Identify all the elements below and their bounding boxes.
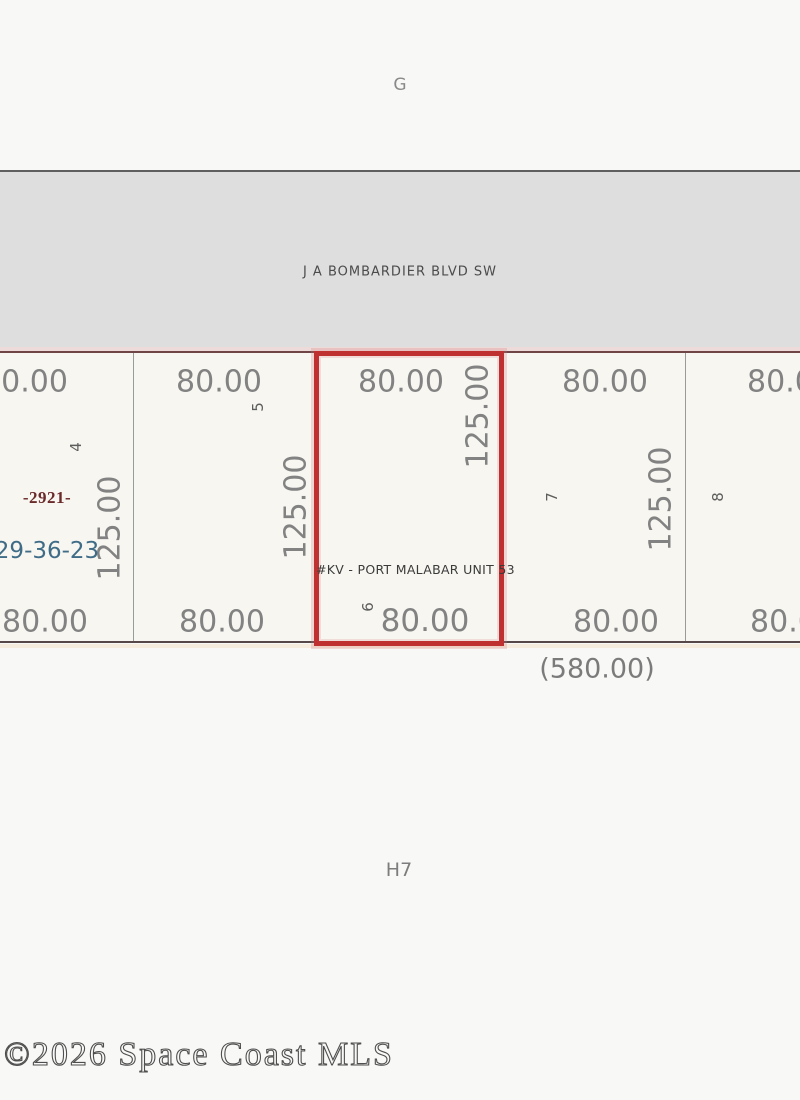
road-name-label: J A BOMBARDIER BLVD SW (303, 265, 497, 280)
mls-watermark: ©2026 Space Coast MLS (4, 1036, 394, 1074)
section-township-range-label: 29-36-23 (0, 538, 99, 564)
lot6-front-dimension: 80.00 (358, 365, 444, 400)
lot4-depth-dimension: 125.00 (93, 476, 128, 581)
lot6-rear-dimension: 80.00 (381, 603, 470, 639)
road-strip (0, 170, 800, 351)
lot6-number: 6 (359, 602, 377, 612)
plat-map: G J A BOMBARDIER BLVD SW 80.00 80.00 125… (0, 0, 800, 1100)
lot8-rear-dimension: 80.00 (750, 605, 800, 640)
plat-number-label: -2921- (23, 488, 71, 508)
lot7-front-dimension: 80.00 (562, 365, 648, 400)
lot5-number: 5 (249, 402, 267, 412)
lot5-rear-dimension: 80.00 (179, 605, 265, 640)
lot-boundary-4-5 (133, 353, 134, 641)
grid-label-g: G (393, 75, 406, 95)
grid-label-h7: H7 (386, 859, 412, 881)
lot4-number: 4 (67, 442, 85, 452)
lot7-rear-dimension: 80.00 (573, 605, 659, 640)
lot8-number: 8 (709, 492, 727, 502)
lot6-depth-dimension: 125.00 (461, 364, 496, 469)
lot-boundary-7-8 (685, 353, 686, 641)
lot5-front-dimension: 80.00 (176, 365, 262, 400)
subdivision-label: #KV - PORT MALABAR UNIT 53 (316, 562, 515, 577)
lot8-front-dimension: 80.00 (747, 365, 800, 400)
lot5-depth-dimension: 125.00 (279, 455, 314, 560)
lot4-rear-dimension: 80.00 (2, 605, 88, 640)
lot7-depth-dimension: 125.00 (644, 447, 679, 552)
block-total-frontage-dimension: (580.00) (539, 654, 655, 685)
lot4-front-dimension: 80.00 (0, 365, 68, 400)
lot7-number: 7 (543, 492, 561, 502)
